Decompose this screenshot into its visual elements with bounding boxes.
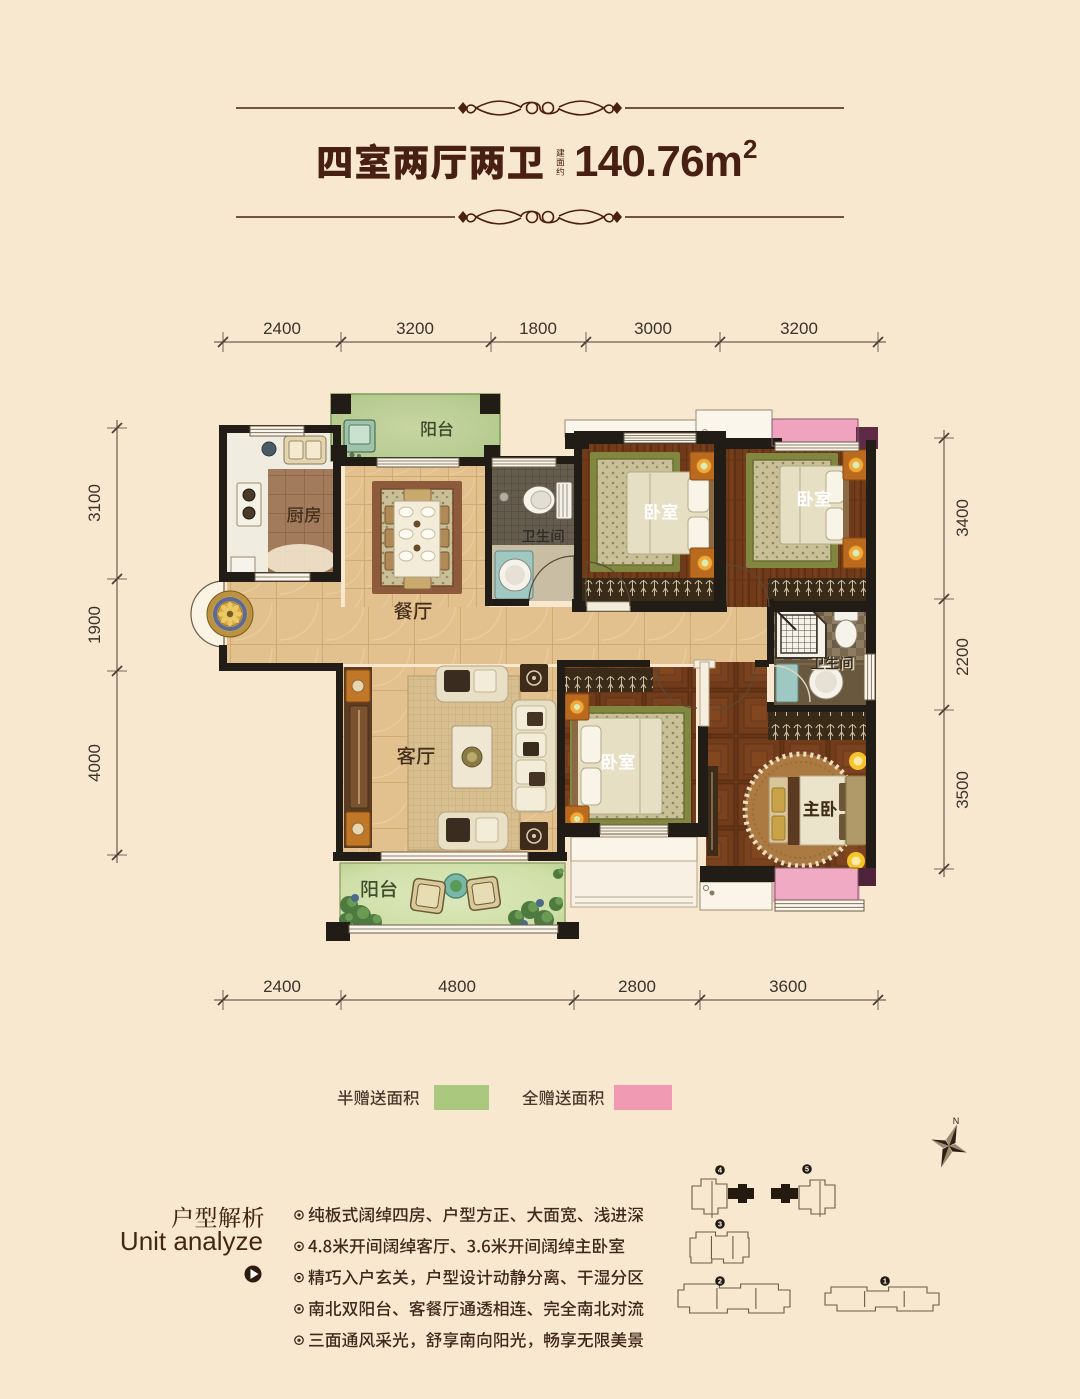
svg-text:2: 2 bbox=[718, 1277, 722, 1286]
svg-text:2400: 2400 bbox=[263, 977, 301, 996]
svg-text:N: N bbox=[953, 1116, 960, 1126]
svg-text:3200: 3200 bbox=[396, 319, 434, 338]
svg-text:4000: 4000 bbox=[85, 744, 104, 782]
svg-text:2400: 2400 bbox=[263, 319, 301, 338]
svg-text:2800: 2800 bbox=[618, 977, 656, 996]
svg-text:3000: 3000 bbox=[634, 319, 672, 338]
svg-text:3600: 3600 bbox=[769, 977, 807, 996]
svg-text:3100: 3100 bbox=[85, 484, 104, 522]
svg-text:1800: 1800 bbox=[519, 319, 557, 338]
svg-text:2: 2 bbox=[743, 134, 757, 164]
svg-text:3: 3 bbox=[718, 1220, 722, 1229]
svg-text:5: 5 bbox=[805, 1165, 809, 1174]
svg-text:1: 1 bbox=[883, 1277, 887, 1286]
svg-text:3400: 3400 bbox=[953, 499, 972, 537]
svg-text:3500: 3500 bbox=[953, 771, 972, 809]
svg-text:3200: 3200 bbox=[780, 319, 818, 338]
svg-text:140.76m: 140.76m bbox=[574, 137, 742, 186]
svg-text:1900: 1900 bbox=[85, 606, 104, 644]
svg-text:2200: 2200 bbox=[953, 638, 972, 676]
svg-text:Unit analyze: Unit analyze bbox=[120, 1226, 263, 1256]
svg-text:4800: 4800 bbox=[438, 977, 476, 996]
